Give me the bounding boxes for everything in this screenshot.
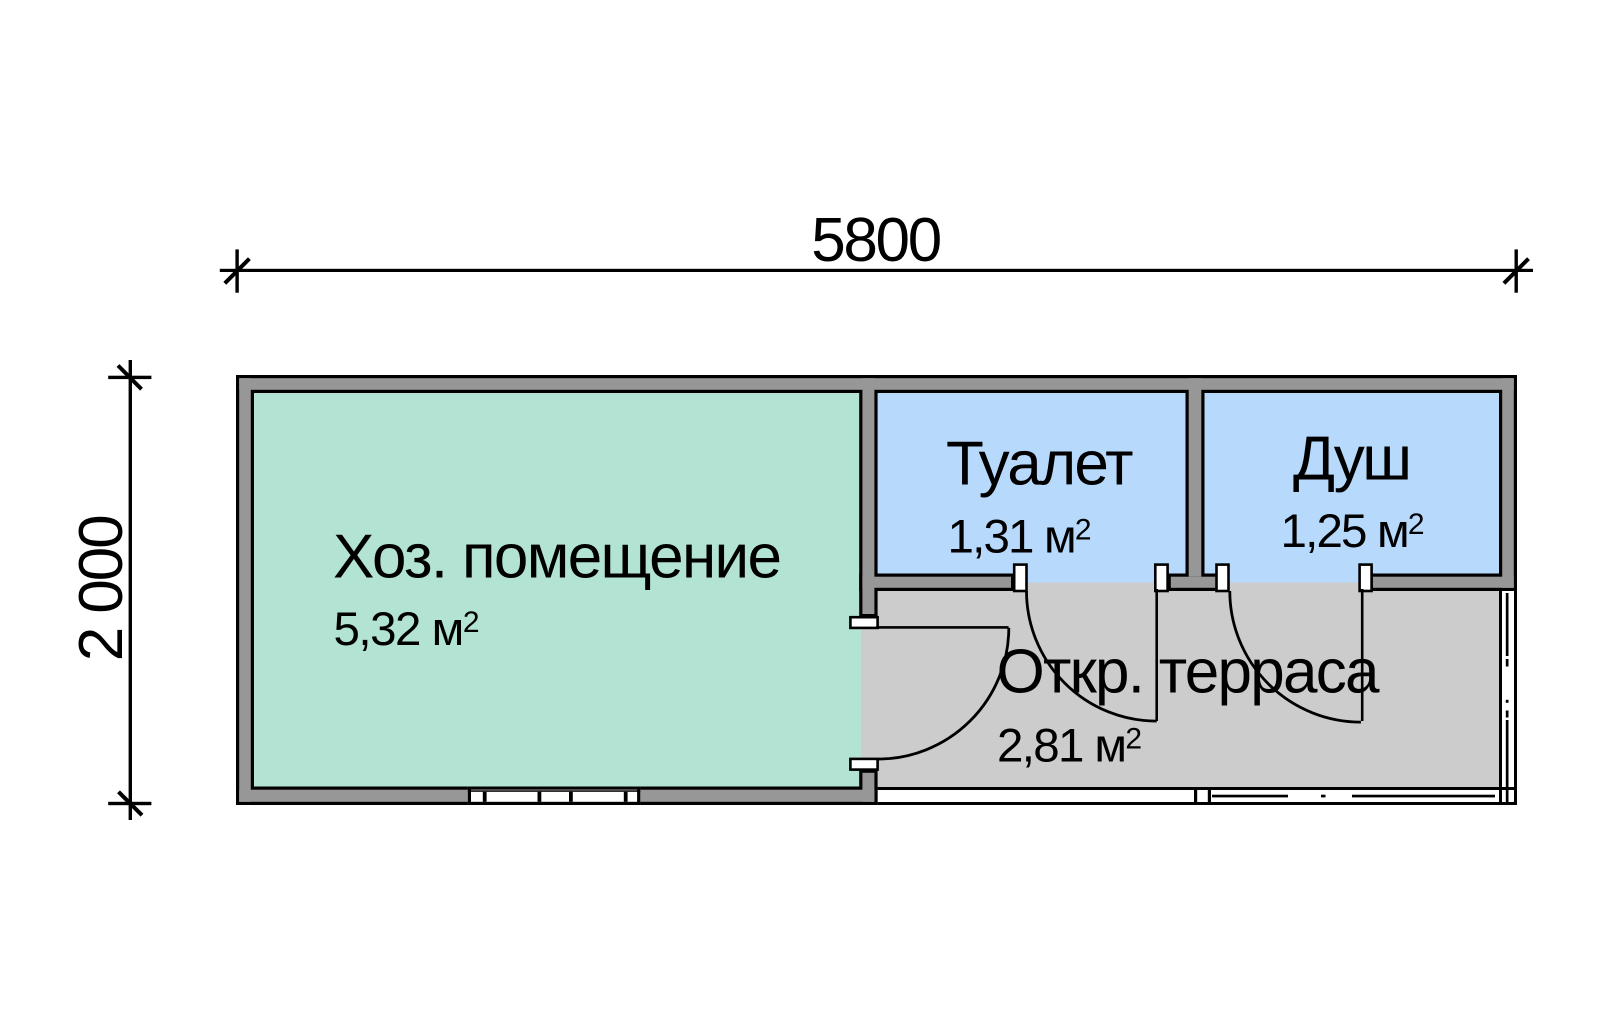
svg-text:Хоз. помещение: Хоз. помещение (333, 523, 782, 592)
svg-text:1,25 м2: 1,25 м2 (1281, 505, 1425, 558)
svg-text:2 000: 2 000 (67, 514, 136, 661)
svg-text:Туалет: Туалет (946, 430, 1134, 499)
svg-text:1,31 м2: 1,31 м2 (948, 511, 1092, 564)
svg-text:5800: 5800 (811, 206, 942, 275)
svg-text:2,81 м2: 2,81 м2 (997, 720, 1142, 773)
svg-text:5,32 м2: 5,32 м2 (334, 603, 480, 656)
svg-text:Душ: Душ (1293, 425, 1412, 494)
